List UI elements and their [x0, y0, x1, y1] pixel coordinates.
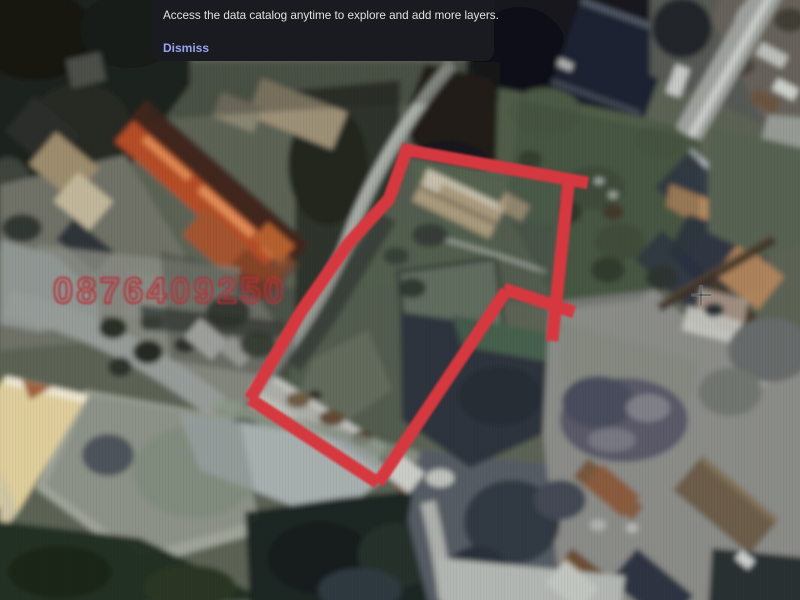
svg-text:0876409250: 0876409250 — [53, 270, 287, 311]
svg-text:Dismiss: Dismiss — [163, 41, 209, 55]
svg-text:Access the data catalog anytim: Access the data catalog anytime to explo… — [163, 9, 499, 22]
